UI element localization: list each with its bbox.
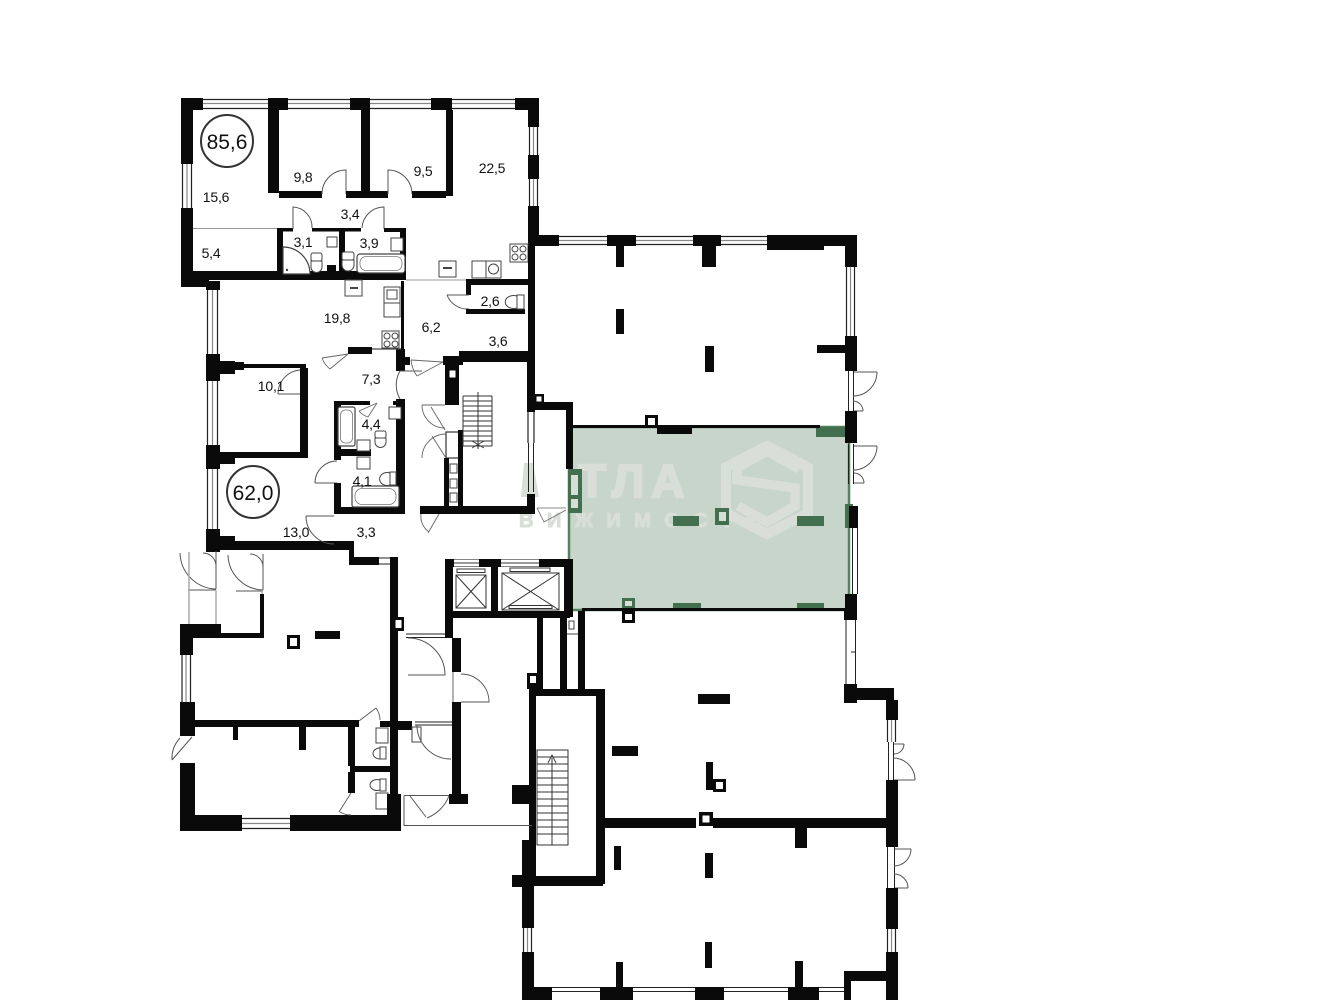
- svg-text:22,5: 22,5: [479, 160, 506, 176]
- svg-text:85,6: 85,6: [207, 131, 248, 154]
- svg-text:ТЛА: ТЛА: [578, 455, 691, 507]
- svg-text:3,4: 3,4: [341, 206, 360, 222]
- svg-text:3,6: 3,6: [489, 333, 508, 349]
- svg-text:4,1: 4,1: [353, 473, 372, 489]
- svg-text:19,8: 19,8: [324, 310, 351, 326]
- svg-text:4,4: 4,4: [362, 416, 381, 432]
- svg-text:9,8: 9,8: [294, 169, 313, 185]
- svg-text:ВИЖИМОСТЬ: ВИЖИМОСТЬ: [519, 510, 775, 532]
- svg-text:10,1: 10,1: [258, 378, 285, 394]
- svg-text:13,0: 13,0: [283, 524, 310, 540]
- svg-text:2,6: 2,6: [481, 293, 500, 309]
- svg-text:3,9: 3,9: [360, 235, 379, 251]
- svg-text:3,3: 3,3: [357, 524, 376, 540]
- svg-text:7,3: 7,3: [362, 371, 381, 387]
- svg-text:3,1: 3,1: [294, 234, 313, 250]
- svg-text:5,4: 5,4: [202, 245, 221, 261]
- svg-text:15,6: 15,6: [203, 189, 230, 205]
- svg-text:6,2: 6,2: [422, 319, 441, 335]
- svg-text:9,5: 9,5: [414, 163, 433, 179]
- svg-text:62,0: 62,0: [233, 482, 274, 505]
